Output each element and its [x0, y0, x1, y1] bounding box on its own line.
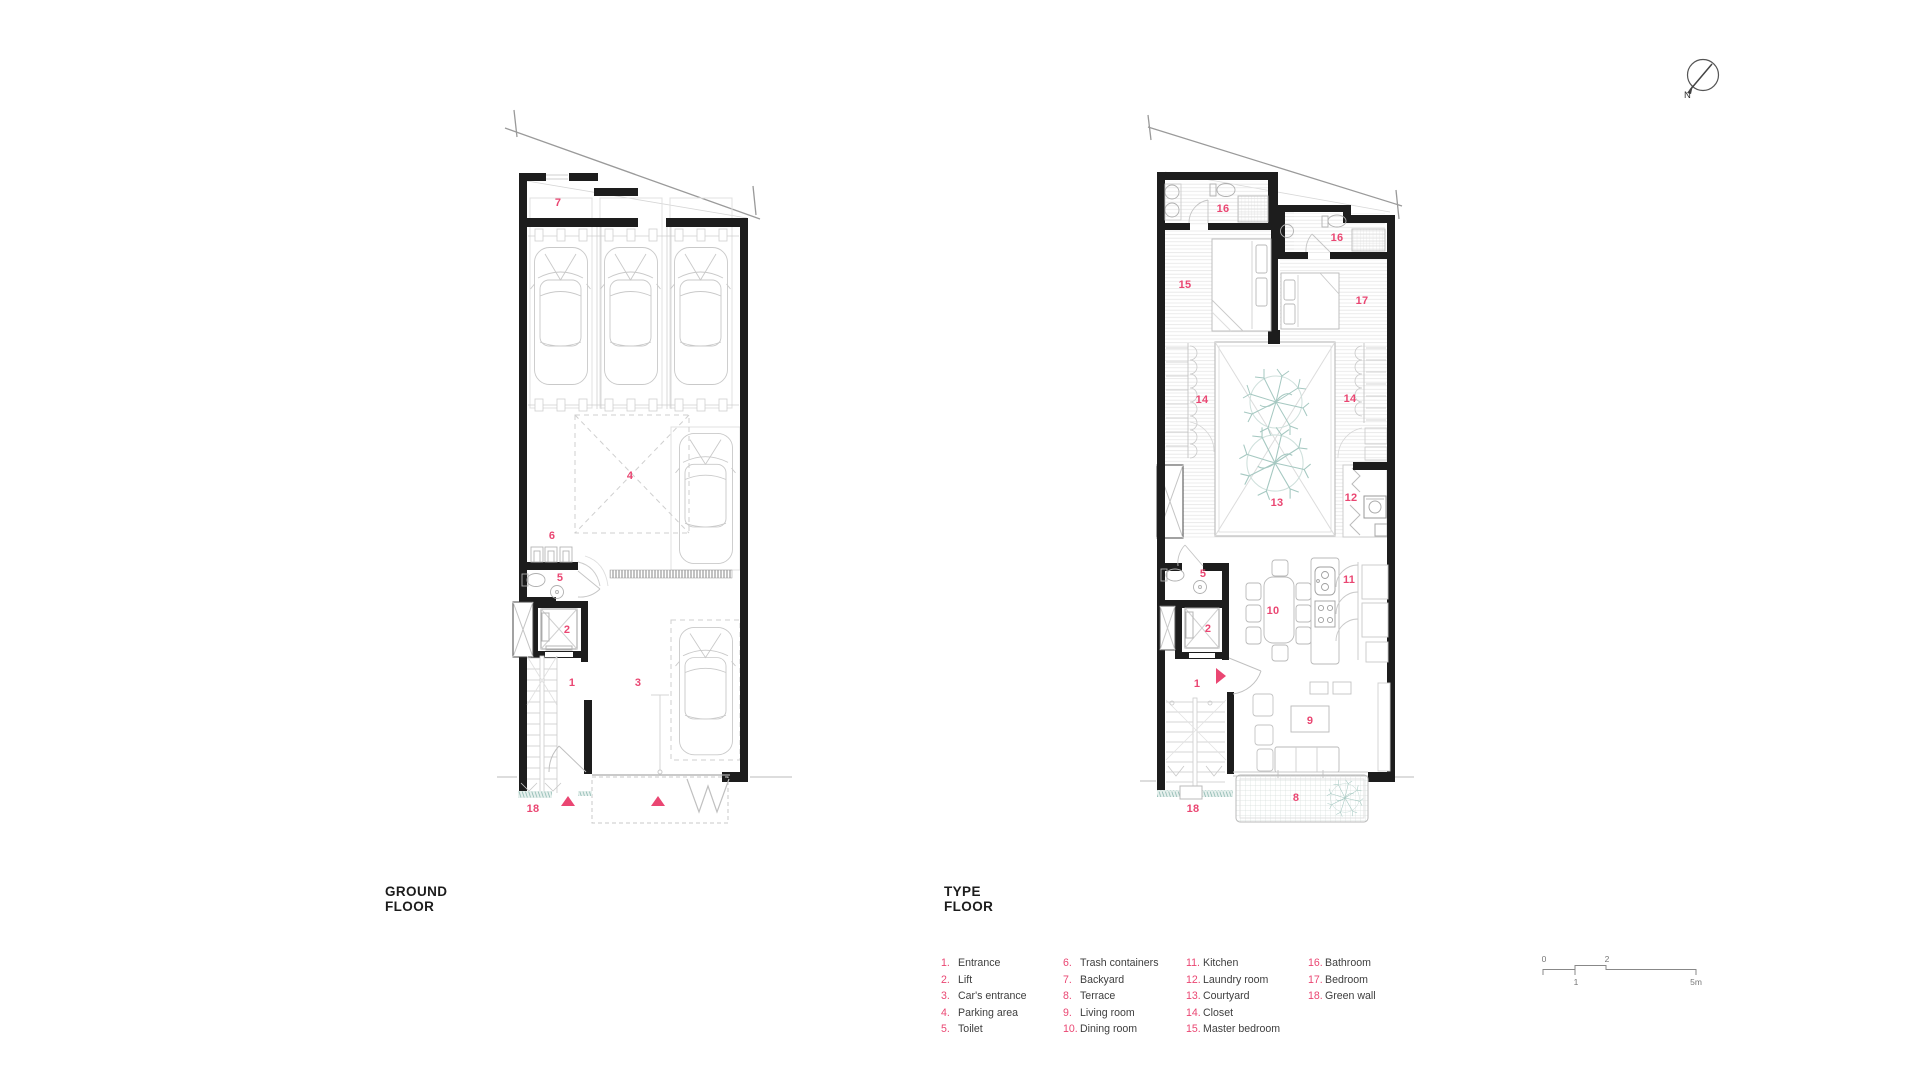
legend-item-label: Entrance [958, 955, 1000, 972]
type-floor-plan [1140, 115, 1414, 822]
legend-item: 7.Backyard [1063, 972, 1159, 989]
legend-item: 3.Car's entrance [941, 988, 1027, 1005]
legend-item-label: Kitchen [1203, 955, 1238, 972]
scale-tick-label: 1 [1574, 977, 1579, 987]
legend-item-label: Bathroom [1325, 955, 1371, 972]
master-bed [1212, 239, 1271, 331]
room-number-label: 16 [1331, 232, 1344, 244]
type-floor-title: TYPE FLOOR [944, 884, 993, 914]
legend-item-number: 7. [1063, 972, 1080, 989]
legend-item-number: 12. [1186, 972, 1203, 989]
legend-item: 10.Dining room [1063, 1021, 1159, 1038]
walls [519, 173, 748, 797]
legend-item-label: Lift [958, 972, 972, 989]
legend-item: 1.Entrance [941, 955, 1027, 972]
room-number-label: 5 [1200, 568, 1206, 580]
legend-item: 6.Trash containers [1063, 955, 1159, 972]
ground-floor-title-line1: GROUND [385, 884, 447, 899]
room-number-label: 17 [1356, 295, 1369, 307]
legend-item: 12.Laundry room [1186, 972, 1280, 989]
entrance-arrow [561, 796, 575, 806]
site-boundary [505, 110, 760, 219]
entrance-door-swing [1229, 658, 1261, 694]
type-floor-title-line1: TYPE [944, 884, 993, 899]
scale-tick-label: 2 [1605, 954, 1610, 964]
legend-item-number: 15. [1186, 1021, 1203, 1038]
legend-item-label: Car's entrance [958, 988, 1027, 1005]
entrance-arrow [1216, 668, 1226, 684]
legend-item-label: Closet [1203, 1005, 1233, 1022]
room-number-label: 18 [1187, 803, 1200, 815]
scale-bar [1543, 966, 1696, 976]
room-number-label: 1 [569, 677, 575, 689]
legend-item: 11.Kitchen [1186, 955, 1280, 972]
legend-item-number: 18. [1308, 988, 1325, 1005]
scale-tick-label: 5m [1690, 977, 1702, 987]
north-label: N [1684, 90, 1691, 101]
legend-item: 16.Bathroom [1308, 955, 1376, 972]
legend-item-number: 4. [941, 1005, 958, 1022]
legend-item-number: 8. [1063, 988, 1080, 1005]
car-icon [676, 627, 736, 754]
car-icon [601, 248, 661, 385]
room-number-label: 14 [1344, 393, 1357, 405]
entrance-arrow [651, 796, 665, 806]
legend-item-label: Living room [1080, 1005, 1135, 1022]
legend-item: 13.Courtyard [1186, 988, 1280, 1005]
car-icon [531, 248, 591, 385]
legend-item-label: Trash containers [1080, 955, 1159, 972]
legend-item-label: Master bedroom [1203, 1021, 1280, 1038]
legend-item-number: 11. [1186, 955, 1203, 972]
legend-item-label: Backyard [1080, 972, 1124, 989]
stairs [1166, 698, 1226, 790]
room-number-label: 18 [527, 803, 540, 815]
car-icon [671, 248, 731, 385]
room-number-label: 10 [1267, 605, 1280, 617]
legend-item-number: 6. [1063, 955, 1080, 972]
legend-item-label: Courtyard [1203, 988, 1250, 1005]
room-number-label: 3 [635, 677, 641, 689]
room-number-label: 12 [1345, 492, 1358, 504]
legend-item-number: 1. [941, 955, 958, 972]
bed [1281, 273, 1339, 329]
legend-item-label: Parking area [958, 1005, 1018, 1022]
room-number-label: 15 [1179, 279, 1192, 291]
legend-item: 4.Parking area [941, 1005, 1027, 1022]
room-number-label: 2 [564, 624, 570, 636]
legend-item-label: Laundry room [1203, 972, 1268, 989]
legend-column-1: 1.Entrance2.Lift3.Car's entrance4.Parkin… [941, 955, 1027, 1038]
legend-item: 18.Green wall [1308, 988, 1376, 1005]
legend-item-number: 16. [1308, 955, 1325, 972]
green-wall [518, 791, 552, 798]
legend-item: 8.Terrace [1063, 988, 1159, 1005]
legend-item-label: Toilet [958, 1021, 983, 1038]
drain-grille [610, 570, 732, 578]
room-number-label: 1 [1194, 678, 1200, 690]
lift-door-gap [1189, 653, 1215, 658]
north-compass [1687, 60, 1719, 95]
legend-item-number: 3. [941, 988, 958, 1005]
type-floor-title-line2: FLOOR [944, 899, 993, 914]
legend-item: 15.Master bedroom [1186, 1021, 1280, 1038]
room-number-label: 6 [549, 530, 555, 542]
room-number-label: 2 [1205, 623, 1211, 635]
legend-item-number: 17. [1308, 972, 1325, 989]
ground-floor-plan [497, 110, 792, 823]
green-wall [578, 791, 592, 796]
legend-item-label: Dining room [1080, 1021, 1137, 1038]
living-room-furniture [1253, 682, 1390, 772]
legend-item: 5.Toilet [941, 1021, 1027, 1038]
legend-item-number: 14. [1186, 1005, 1203, 1022]
legend-item-label: Green wall [1325, 988, 1376, 1005]
ground-floor-title-line2: FLOOR [385, 899, 447, 914]
legend-item: 9.Living room [1063, 1005, 1159, 1022]
car-icon [676, 433, 736, 563]
scale-tick-label: 0 [1542, 954, 1547, 964]
lift-door-gap [545, 652, 573, 657]
legend-column-4: 16.Bathroom17.Bedroom18.Green wall [1308, 955, 1376, 1005]
legend-item-label: Bedroom [1325, 972, 1368, 989]
room-number-label: 11 [1343, 574, 1355, 586]
ground-floor-title: GROUND FLOOR [385, 884, 447, 914]
legend-item-number: 5. [941, 1021, 958, 1038]
legend-item-number: 2. [941, 972, 958, 989]
legend-item-label: Terrace [1080, 988, 1115, 1005]
legend-item: 14.Closet [1186, 1005, 1280, 1022]
room-number-label: 4 [627, 470, 633, 482]
legend-column-3: 11.Kitchen12.Laundry room13.Courtyard14.… [1186, 955, 1280, 1038]
legend-item: 17.Bedroom [1308, 972, 1376, 989]
backyard-gate [546, 175, 568, 179]
floor-plans-linework [0, 0, 1920, 1080]
room-number-label: 16 [1217, 203, 1230, 215]
room-number-label: 7 [555, 197, 561, 209]
trash-containers [531, 547, 572, 562]
legend-item: 2.Lift [941, 972, 1027, 989]
legend-item-number: 9. [1063, 1005, 1080, 1022]
architectural-sheet: { "plans": { "ground": { "title_line1": … [0, 0, 1920, 1080]
legend-column-2: 6.Trash containers7.Backyard8.Terrace9.L… [1063, 955, 1159, 1038]
car-lift-racks [528, 229, 739, 411]
planter-box [1180, 786, 1202, 799]
room-number-label: 14 [1196, 394, 1209, 406]
room-number-label: 8 [1293, 792, 1299, 804]
room-number-label: 9 [1307, 715, 1313, 727]
legend-item-number: 10. [1063, 1021, 1080, 1038]
room-number-label: 5 [557, 572, 563, 584]
legend-item-number: 13. [1186, 988, 1203, 1005]
room-number-label: 13 [1271, 497, 1284, 509]
